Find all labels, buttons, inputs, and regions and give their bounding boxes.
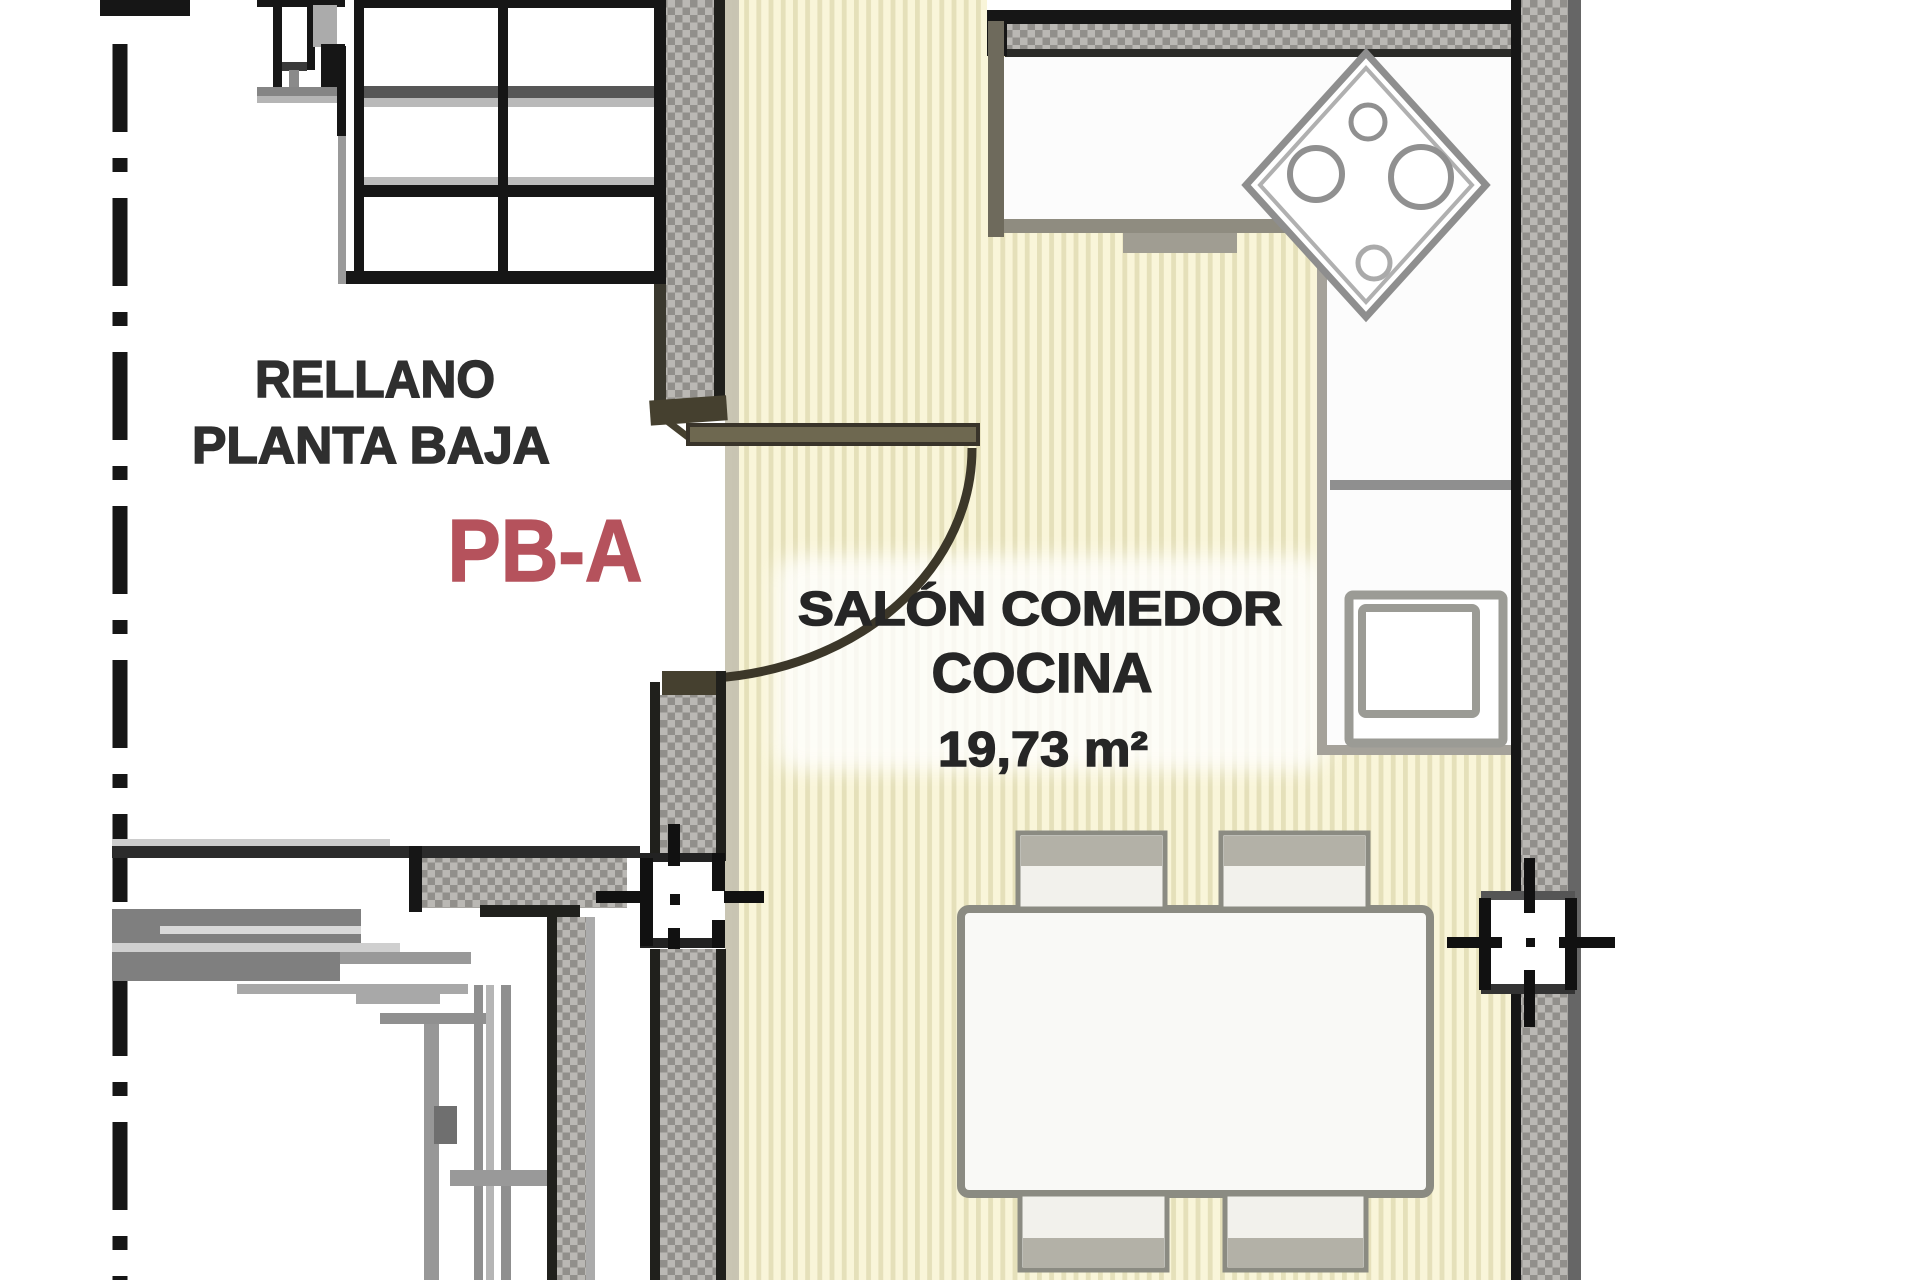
svg-text:PLANTA BAJA: PLANTA BAJA bbox=[192, 417, 550, 475]
svg-text:SALÓN COMEDOR: SALÓN COMEDOR bbox=[798, 581, 1282, 636]
svg-text:PB-A: PB-A bbox=[448, 501, 643, 600]
svg-text:RELLANO: RELLANO bbox=[255, 351, 495, 409]
svg-text:COCINA: COCINA bbox=[932, 641, 1153, 704]
svg-text:19,73 m²: 19,73 m² bbox=[938, 723, 1148, 777]
